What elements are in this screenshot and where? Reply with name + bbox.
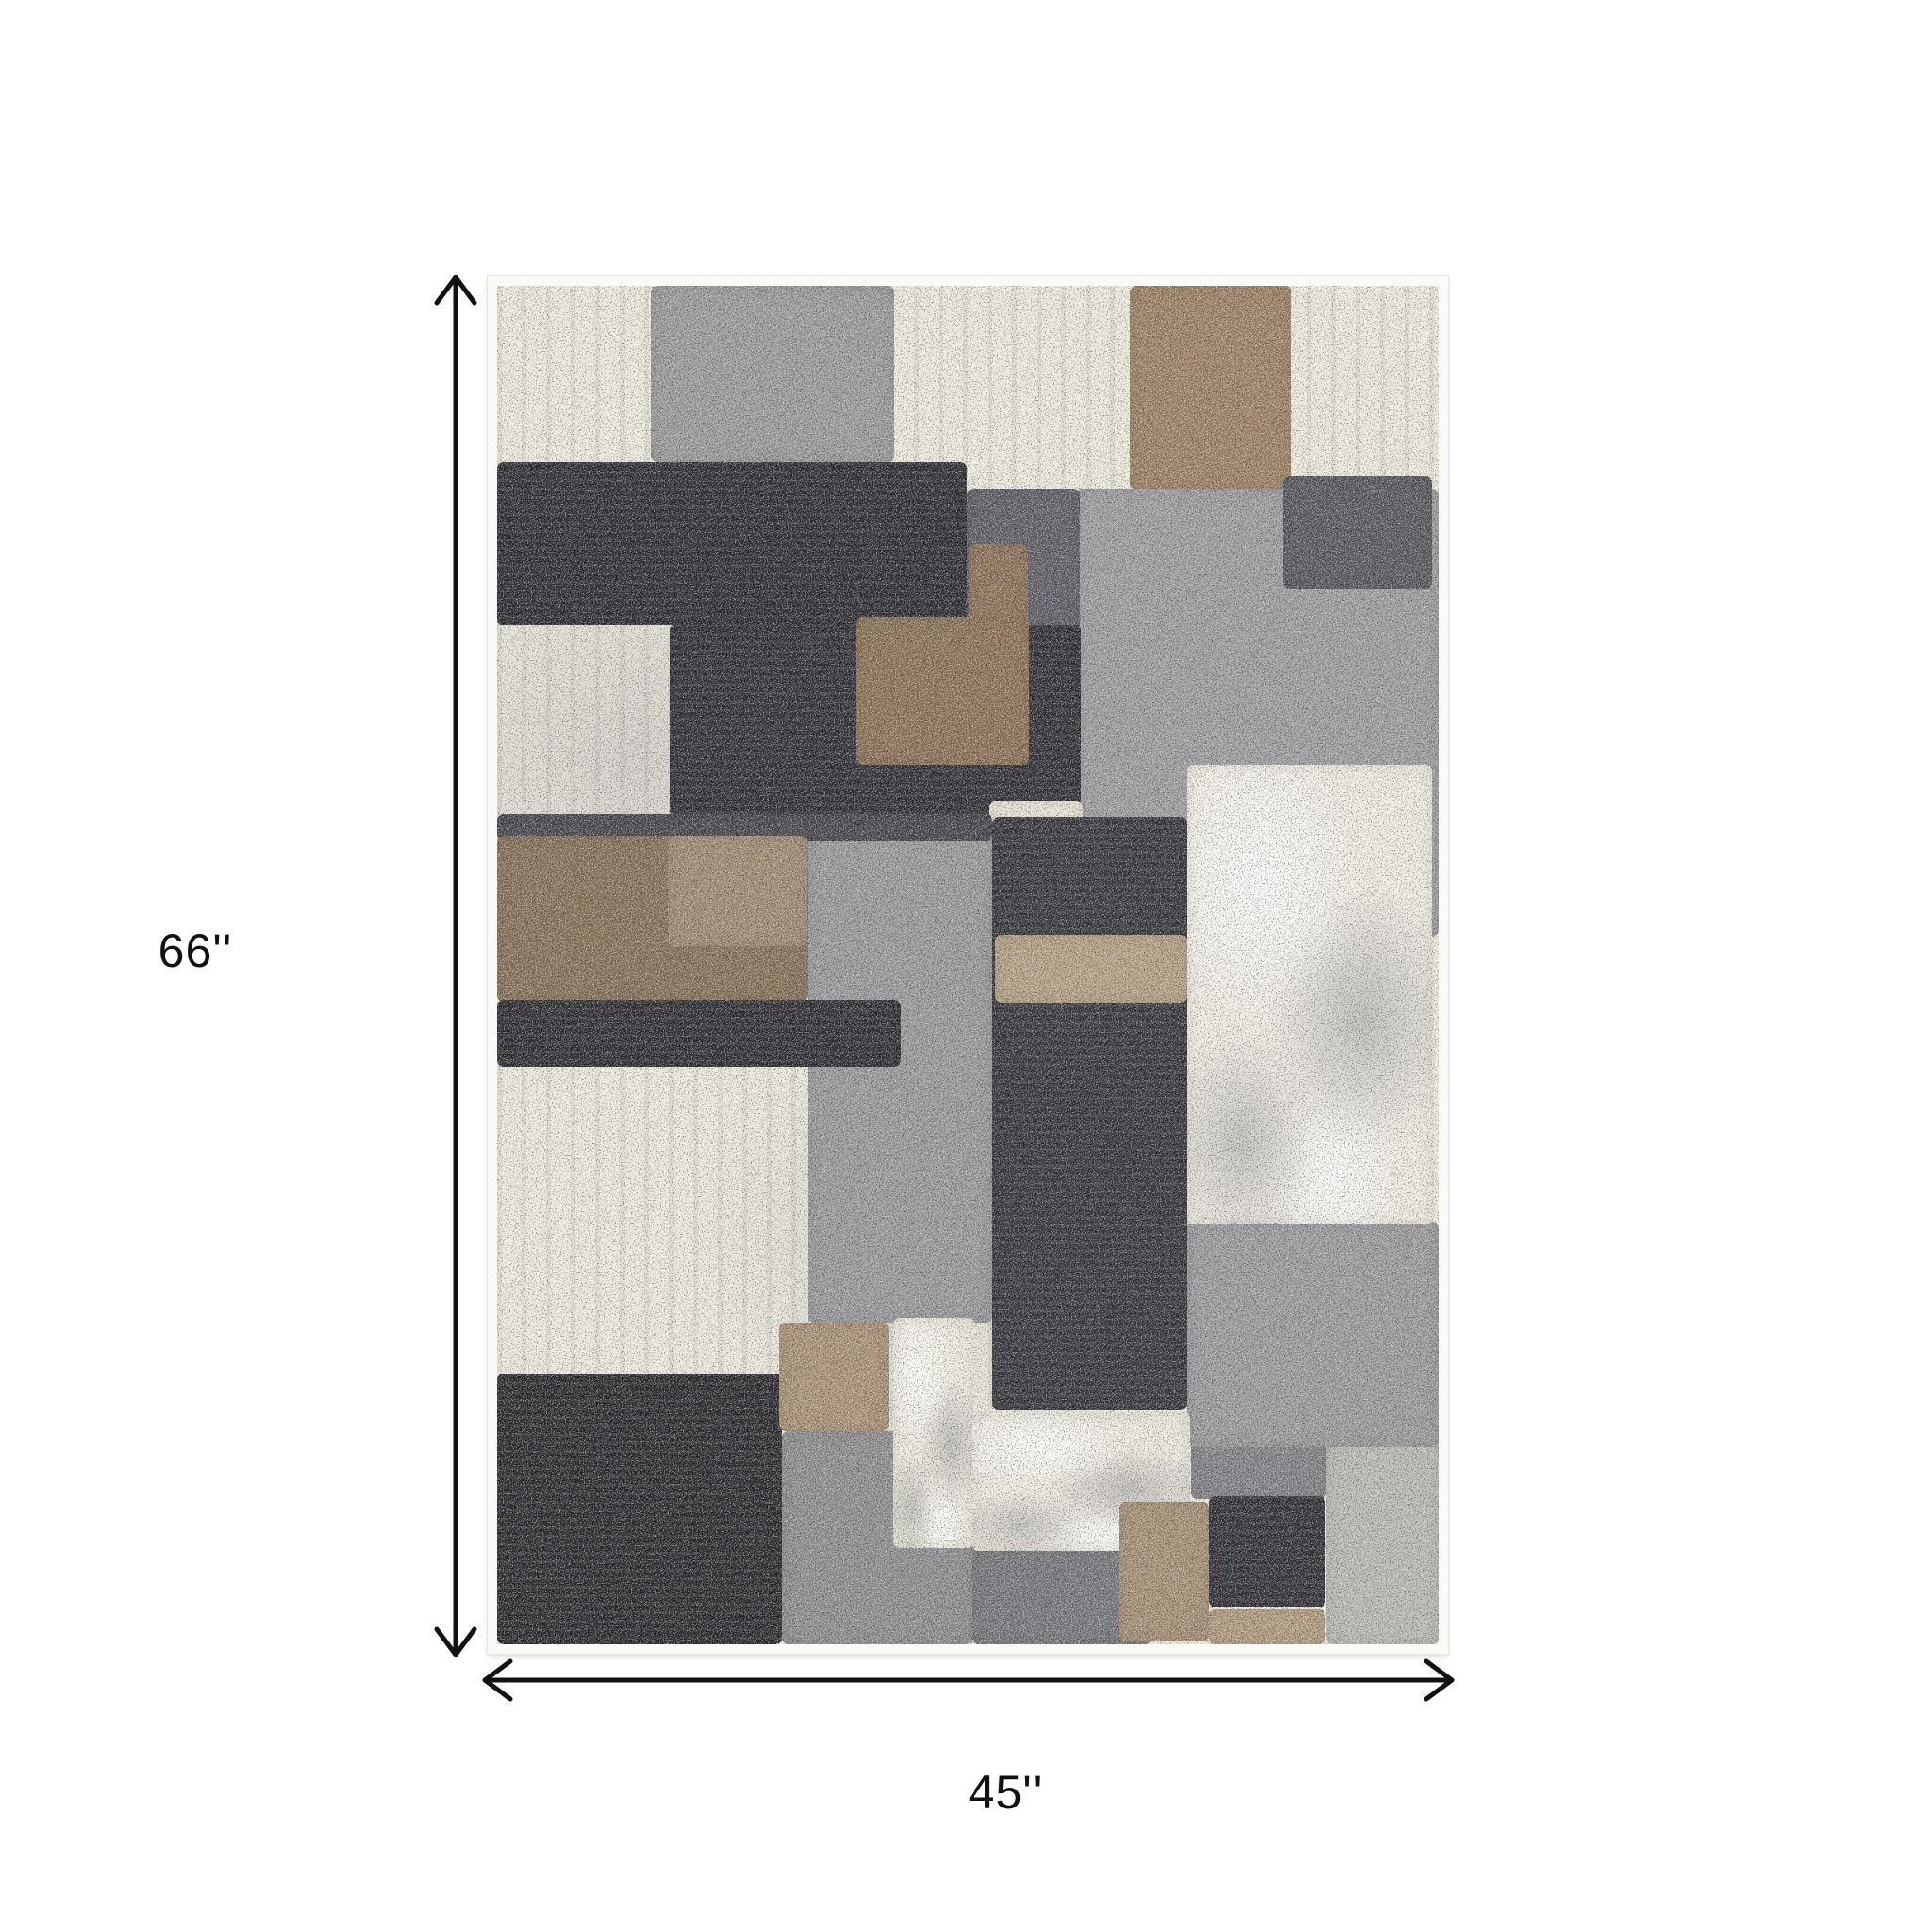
patch-black-block-bottom-left xyxy=(497,1374,782,1644)
patch-cream-strip-bottom xyxy=(893,1318,974,1547)
width-dimension-label: 45'' xyxy=(969,1765,1043,1820)
patch-tan-strip-bottom-right xyxy=(1209,1609,1325,1644)
patch-concrete-middle xyxy=(808,817,992,1323)
patch-brown-center xyxy=(856,617,1029,765)
patch-tan-strip-inset xyxy=(995,935,1187,1003)
patch-concrete-right-lower xyxy=(1187,1222,1439,1447)
rug-image xyxy=(488,276,1448,1654)
patch-black-bar-top xyxy=(497,462,967,625)
product-dimension-diagram: 66'' 45'' xyxy=(0,0,1932,1932)
patch-tall-dark-block xyxy=(992,817,1187,1410)
patch-brown-center-arm xyxy=(969,544,1028,628)
patch-tan-inset-left xyxy=(668,836,808,946)
patch-brown-top-right xyxy=(1130,286,1292,490)
patch-dark-gray-right xyxy=(1283,476,1432,590)
patch-black-square-bottom xyxy=(1209,1496,1325,1607)
width-arrow xyxy=(485,1661,1452,1699)
patch-tan-square-bottom xyxy=(779,1323,889,1431)
patch-concrete-top xyxy=(651,286,894,462)
patch-black-bar-mid xyxy=(497,1000,901,1067)
height-dimension-label: 66'' xyxy=(158,924,233,978)
rug-pattern xyxy=(497,286,1439,1644)
height-arrow xyxy=(437,277,475,1655)
patch-tan-vertical-bottom xyxy=(1119,1502,1210,1641)
patch-cream-right-large xyxy=(1187,765,1432,1224)
